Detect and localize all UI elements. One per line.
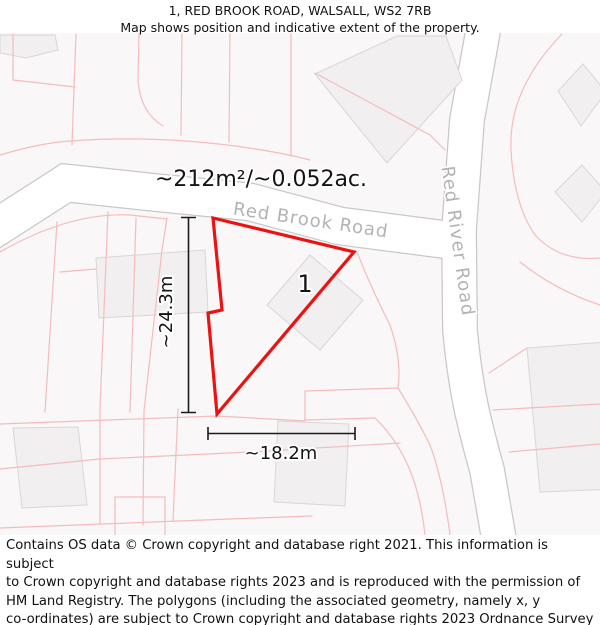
building <box>13 427 87 508</box>
copyright-line: to Crown copyright and database rights 2… <box>6 574 596 593</box>
height-dimension-label: ~24.3m <box>156 276 177 349</box>
copyright-notice: Contains OS data © Crown copyright and d… <box>6 537 596 625</box>
building <box>527 342 600 492</box>
property-map: Red Brook Road Red River Road ~212m²/~0.… <box>0 0 600 625</box>
page-title: 1, RED BROOK ROAD, WALSALL, WS2 7RB <box>0 3 600 18</box>
building <box>96 250 208 318</box>
copyright-line: Contains OS data © Crown copyright and d… <box>6 537 596 574</box>
copyright-line: co-ordinates) are subject to Crown copyr… <box>6 611 596 625</box>
page-subtitle: Map shows position and indicative extent… <box>0 20 600 35</box>
property-map-page: 1, RED BROOK ROAD, WALSALL, WS2 7RB Map … <box>0 0 600 625</box>
copyright-line: HM Land Registry. The polygons (includin… <box>6 593 596 612</box>
area-label: ~212m²/~0.052ac. <box>155 167 367 192</box>
page-header: 1, RED BROOK ROAD, WALSALL, WS2 7RB Map … <box>0 0 600 35</box>
width-dimension-label: ~18.2m <box>245 443 318 464</box>
plot-number-label: 1 <box>297 270 312 298</box>
